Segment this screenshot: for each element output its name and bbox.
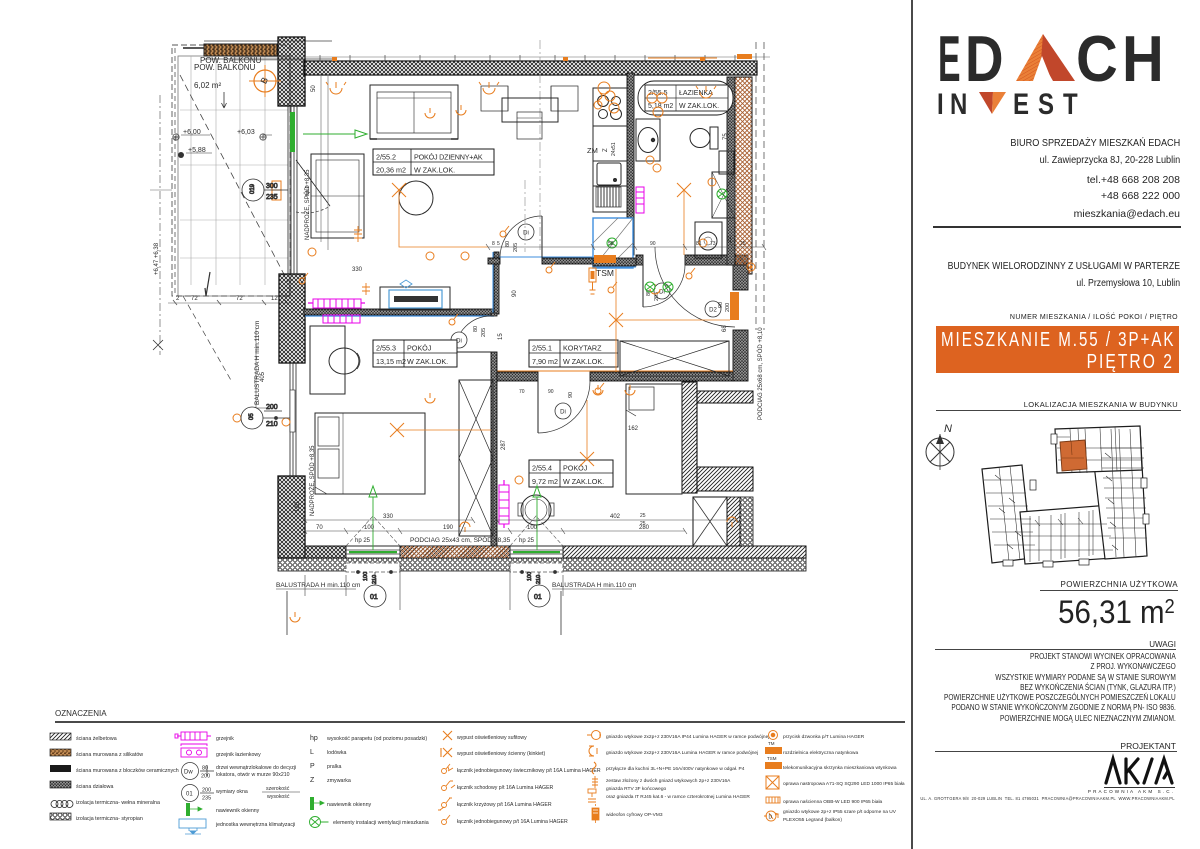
svg-text:90: 90 <box>650 241 656 247</box>
svg-text:POKÓJ DZIENNY+AK: POKÓJ DZIENNY+AK <box>414 153 483 162</box>
svg-text:łącznik jednobiegunowy świeczn: łącznik jednobiegunowy świecznikowy p/t … <box>457 768 601 774</box>
svg-text:210: 210 <box>266 421 278 428</box>
svg-text:90: 90 <box>548 389 554 395</box>
svg-text:205: 205 <box>481 328 487 337</box>
svg-text:ZM: ZM <box>587 146 598 155</box>
svg-text:25: 25 <box>740 241 746 247</box>
svg-text:50: 50 <box>311 85 317 92</box>
svg-text:gniazdo wtykowe 2x2p+z 230V16A: gniazdo wtykowe 2x2p+z 230V16A Lumina HA… <box>606 750 758 756</box>
svg-text:100: 100 <box>527 572 533 581</box>
svg-text:01: 01 <box>370 594 378 601</box>
svg-text:wypust oświetleniowy ścienny (: wypust oświetleniowy ścienny (kinkiet) <box>457 751 545 757</box>
svg-text:68: 68 <box>722 325 728 332</box>
svg-text:Dw: Dw <box>184 770 193 776</box>
svg-text:BALUSTRADA H min.110 cm: BALUSTRADA H min.110 cm <box>552 582 636 589</box>
svg-text:grzejnik: grzejnik <box>216 736 234 742</box>
svg-text:D: D <box>769 815 773 821</box>
svg-text:300: 300 <box>266 183 278 190</box>
svg-text:D2: D2 <box>709 308 717 314</box>
svg-text:162: 162 <box>628 426 639 432</box>
svg-text:80: 80 <box>473 326 479 332</box>
svg-text:gniazdo wtykowe 2x2p+z 230V16A: gniazdo wtykowe 2x2p+z 230V16A IP44 Lumi… <box>606 734 769 740</box>
svg-text:210: 210 <box>536 575 542 584</box>
svg-text:287: 287 <box>501 439 507 450</box>
svg-text:POW. BALKONU: POW. BALKONU <box>200 56 262 65</box>
svg-text:70: 70 <box>519 389 525 395</box>
svg-text:2/55.3: 2/55.3 <box>376 344 396 353</box>
svg-text:75: 75 <box>723 133 729 140</box>
svg-text:H: H <box>1122 23 1164 96</box>
svg-text:W ZAK.LOK.: W ZAK.LOK. <box>563 357 604 366</box>
svg-text:6,02 m²: 6,02 m² <box>194 81 221 90</box>
svg-text:oprawa nastropowa A71-SQ SQ290: oprawa nastropowa A71-SQ SQ290 LED 1000 … <box>783 781 905 787</box>
svg-text:01: 01 <box>534 594 542 601</box>
svg-text:9,72 m2: 9,72 m2 <box>532 477 558 486</box>
svg-text:TM: TM <box>768 741 775 746</box>
svg-text:W ZAK.LOK.: W ZAK.LOK. <box>679 103 719 110</box>
svg-text:wideofon cyfrowy OP-VM3: wideofon cyfrowy OP-VM3 <box>606 812 663 818</box>
svg-text:22: 22 <box>727 236 733 243</box>
svg-text:wysokość: wysokość <box>267 794 290 800</box>
svg-text:pralka: pralka <box>327 764 341 770</box>
svg-text:Di: Di <box>560 410 566 416</box>
svg-text:01: 01 <box>186 792 193 798</box>
svg-text:7,90 m2: 7,90 m2 <box>532 357 558 366</box>
svg-text:zestaw złożony z dwóch gniazd: zestaw złożony z dwóch gniazd wtykowych … <box>606 778 731 784</box>
svg-text:I: I <box>937 86 944 120</box>
svg-text:72: 72 <box>236 296 243 302</box>
svg-text:190: 190 <box>443 525 454 531</box>
svg-text:235: 235 <box>266 194 278 201</box>
svg-text:200: 200 <box>202 788 211 794</box>
svg-text:8: 8 <box>492 241 495 247</box>
svg-text:72: 72 <box>191 296 198 302</box>
svg-text:ŁAZIENKA: ŁAZIENKA <box>679 90 713 97</box>
svg-text:C: C <box>1076 23 1118 96</box>
svg-text:05: 05 <box>249 413 255 420</box>
svg-text:E: E <box>938 22 961 95</box>
svg-text:13,15 m2: 13,15 m2 <box>376 357 406 366</box>
svg-text:grzejnik łazienkowy: grzejnik łazienkowy <box>216 752 261 758</box>
svg-text:oraz gniazda IT RJ45 kat.6 - w: oraz gniazda IT RJ45 kat.6 - w ramce czt… <box>606 794 750 800</box>
svg-text:izolacja termiczna- wełna mine: izolacja termiczna- wełna mineralna <box>76 800 160 806</box>
svg-text:W ZAK.LOK.: W ZAK.LOK. <box>563 477 604 486</box>
svg-text:12: 12 <box>271 296 278 302</box>
svg-text:25: 25 <box>640 513 646 519</box>
svg-text:zmywarka: zmywarka <box>327 778 351 784</box>
svg-text:D: D <box>965 22 1003 95</box>
svg-text:5: 5 <box>497 241 500 247</box>
svg-text:200: 200 <box>201 774 210 780</box>
svg-text:+6,03: +6,03 <box>237 129 255 136</box>
svg-text:ściana działowa: ściana działowa <box>76 784 113 790</box>
svg-text:24x51: 24x51 <box>611 142 617 156</box>
svg-text:210: 210 <box>372 575 378 584</box>
svg-text:TSM: TSM <box>596 268 614 278</box>
svg-text:330: 330 <box>383 514 394 520</box>
svg-text:Di: Di <box>523 231 529 237</box>
svg-text:200: 200 <box>725 303 731 312</box>
svg-text:80: 80 <box>202 766 208 772</box>
svg-text:rozdzielnica elektryczna natyn: rozdzielnica elektryczna natynkowa <box>783 750 859 756</box>
svg-text:P: P <box>310 763 315 770</box>
svg-text:POKÓJ: POKÓJ <box>407 344 432 353</box>
svg-text:lokatora, otwór w murze 90x210: lokatora, otwór w murze 90x210 <box>216 772 290 778</box>
svg-text:20,36 m2: 20,36 m2 <box>376 166 406 175</box>
svg-text:telekomunikacyjna skrzynka mie: telekomunikacyjna skrzynka mieszkaniowa … <box>783 765 897 771</box>
svg-text:15: 15 <box>498 333 504 340</box>
svg-text:szerokość: szerokość <box>266 786 290 792</box>
svg-text:NADPROŻE, SPÓD +8,35: NADPROŻE, SPÓD +8,35 <box>304 169 311 240</box>
svg-text:2/55.2: 2/55.2 <box>376 153 396 162</box>
svg-text:łącznik krzyżowy p/t 16A Lumi: łącznik krzyżowy p/t 16A Lumina HAGER <box>457 802 552 808</box>
svg-text:W ZAK.LOK.: W ZAK.LOK. <box>407 357 448 366</box>
svg-text:gniazda RTV 3F końcowego: gniazda RTV 3F końcowego <box>606 786 667 792</box>
svg-text:ściana murowana z silikatów: ściana murowana z silikatów <box>76 752 143 758</box>
svg-text:BALUSTRADA H min.110 cm: BALUSTRADA H min.110 cm <box>276 582 360 589</box>
svg-text:90: 90 <box>512 290 518 297</box>
svg-text:90: 90 <box>568 392 574 398</box>
svg-text:N: N <box>950 86 967 120</box>
svg-text:90: 90 <box>718 302 724 308</box>
svg-text:80: 80 <box>505 241 511 247</box>
svg-text:ściana murowana z bloczków cer: ściana murowana z bloczków ceramicznych <box>76 768 179 774</box>
svg-text:330: 330 <box>352 267 363 273</box>
svg-text:hp 25: hp 25 <box>519 538 535 544</box>
svg-text:PODCIAG 25x43 cm, SPÓD +8,35: PODCIAG 25x43 cm, SPÓD +8,35 <box>410 535 511 544</box>
svg-text:izolacja termiczna- styropian: izolacja termiczna- styropian <box>76 816 143 822</box>
svg-text:lodówka: lodówka <box>327 750 346 756</box>
svg-text:łącznik schodowy p/t 16A Lumi: łącznik schodowy p/t 16A Lumina HAGER <box>457 785 554 791</box>
svg-text:25: 25 <box>640 521 646 527</box>
svg-text:nawiewnik okienny: nawiewnik okienny <box>327 802 372 808</box>
svg-text:T: T <box>1063 86 1078 120</box>
svg-text:wymiary okna: wymiary okna <box>216 789 248 795</box>
svg-text:2/55.4: 2/55.4 <box>532 464 552 473</box>
svg-text:oprawa naścienna OBB-W LED 900: oprawa naścienna OBB-W LED 900 IP65 biał… <box>783 799 883 805</box>
svg-text:W ZAK.LOK.: W ZAK.LOK. <box>414 166 455 175</box>
svg-text:S: S <box>1038 86 1054 120</box>
svg-text:58: 58 <box>608 241 614 247</box>
svg-text:73: 73 <box>710 241 716 247</box>
svg-text:TSM: TSM <box>767 756 777 761</box>
svg-text:100: 100 <box>527 525 538 531</box>
svg-text:+6,47 +6,38: +6,47 +6,38 <box>154 242 160 275</box>
svg-text:elementy instalacji wentylacji: elementy instalacji wentylacji mieszkani… <box>333 820 429 826</box>
svg-text:łącznik jednobiegunowy p/t 16A: łącznik jednobiegunowy p/t 16A Lumina HA… <box>457 819 568 825</box>
svg-text:PODCIAG 25x68 cm, SPÓD +8,10: PODCIAG 25x68 cm, SPÓD +8,10 <box>757 327 764 420</box>
svg-text:nawiewnik okienny: nawiewnik okienny <box>216 808 260 814</box>
svg-text:POKÓJ: POKÓJ <box>563 464 588 473</box>
svg-text:2/55.1: 2/55.1 <box>532 344 552 353</box>
svg-text:NADPROŻE, SPÓD +8,35: NADPROŻE, SPÓD +8,35 <box>309 445 316 516</box>
svg-text:przycisk dzwonka p/T Lumina HA: przycisk dzwonka p/T Lumina HAGER <box>783 734 865 740</box>
svg-text:drzwi wewnątrzlokalowe do decy: drzwi wewnątrzlokalowe do decyzji <box>216 765 296 771</box>
svg-text:OZNACZENIA: OZNACZENIA <box>55 709 107 718</box>
svg-text:100: 100 <box>363 572 369 581</box>
svg-text:hp: hp <box>310 735 318 742</box>
svg-text:wysokość parapetu (od poziomu: wysokość parapetu (od poziomu posadzki) <box>327 736 427 742</box>
svg-text:2: 2 <box>176 296 180 302</box>
svg-text:jednostka wewnętrzna klimatyza: jednostka wewnętrzna klimatyzacji <box>215 822 295 828</box>
svg-text:Z: Z <box>310 777 315 784</box>
svg-text:019: 019 <box>250 183 256 194</box>
svg-text:70: 70 <box>316 525 323 531</box>
svg-text:BALUSTRADA H min.110 cm: BALUSTRADA H min.110 cm <box>254 321 261 405</box>
svg-text:E: E <box>1013 86 1029 120</box>
svg-text:100: 100 <box>364 525 375 531</box>
svg-text:Z: Z <box>603 148 609 152</box>
svg-text:200: 200 <box>266 404 278 411</box>
svg-text:235: 235 <box>202 796 211 802</box>
svg-text:120: 120 <box>295 501 301 512</box>
svg-text:402: 402 <box>610 514 621 520</box>
svg-text:KORYTARZ: KORYTARZ <box>563 344 602 353</box>
svg-text:wypust oświetleniowy sufitowy: wypust oświetleniowy sufitowy <box>457 735 527 741</box>
svg-text:ściana żelbetowa: ściana żelbetowa <box>76 736 117 742</box>
svg-text:gniazdo wtykowe 2p+z IP55 szar: gniazdo wtykowe 2p+z IP55 szare p/t odpo… <box>783 809 897 815</box>
svg-text:hp 25: hp 25 <box>355 538 371 544</box>
svg-text:PLEXO55 Legrand (balkon): PLEXO55 Legrand (balkon) <box>783 817 842 823</box>
svg-text:przyłącze dla kuchni 3L+N+PE 1: przyłącze dla kuchni 3L+N+PE 16A/400V na… <box>606 766 745 772</box>
svg-text:5,18 m2: 5,18 m2 <box>648 103 673 110</box>
svg-text:N: N <box>944 423 952 435</box>
svg-text:205: 205 <box>513 243 519 252</box>
svg-text:L: L <box>310 749 314 756</box>
svg-text:81: 81 <box>696 241 702 247</box>
